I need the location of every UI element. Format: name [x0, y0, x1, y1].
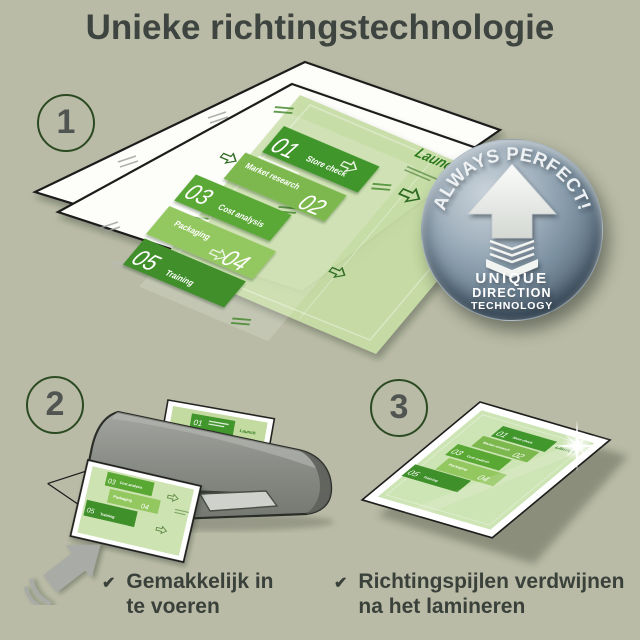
badge-graphics: ALWAYS PERFECT! UNIQUE DIRECTION TECHNOL… — [422, 140, 602, 320]
caption-line: Gemakkelijk in — [126, 570, 273, 593]
badge-line-unique: UNIQUE — [475, 270, 548, 287]
caption-arrows-disappear: ✔ Richtingspijlen verdwijnen na het lami… — [334, 569, 634, 619]
page-title: Unieke richtingstechnologie — [0, 8, 640, 48]
caption-line: Richtingspijlen verdwijnen — [358, 570, 624, 593]
laminated-result-illustration: 01 Store check Market research 02 03 Cos… — [340, 380, 640, 575]
infographic-canvas: Unieke richtingstechnologie 1 2 3 — [0, 0, 640, 640]
always-perfect-badge: ALWAYS PERFECT! UNIQUE DIRECTION TECHNOL… — [421, 139, 603, 321]
caption-line: na het lamineren — [358, 595, 525, 618]
mini-block-number: 01 — [193, 418, 203, 428]
badge-line-direction: DIRECTION — [472, 286, 552, 300]
caption-line: te voeren — [126, 595, 219, 618]
caption-easy-feed: ✔ Gemakkelijk in te voeren — [102, 569, 332, 619]
badge-line-technology: TECHNOLOGY — [471, 300, 553, 312]
up-arrow-icon — [468, 164, 556, 238]
check-icon: ✔ — [102, 569, 115, 619]
check-icon: ✔ — [334, 569, 347, 619]
